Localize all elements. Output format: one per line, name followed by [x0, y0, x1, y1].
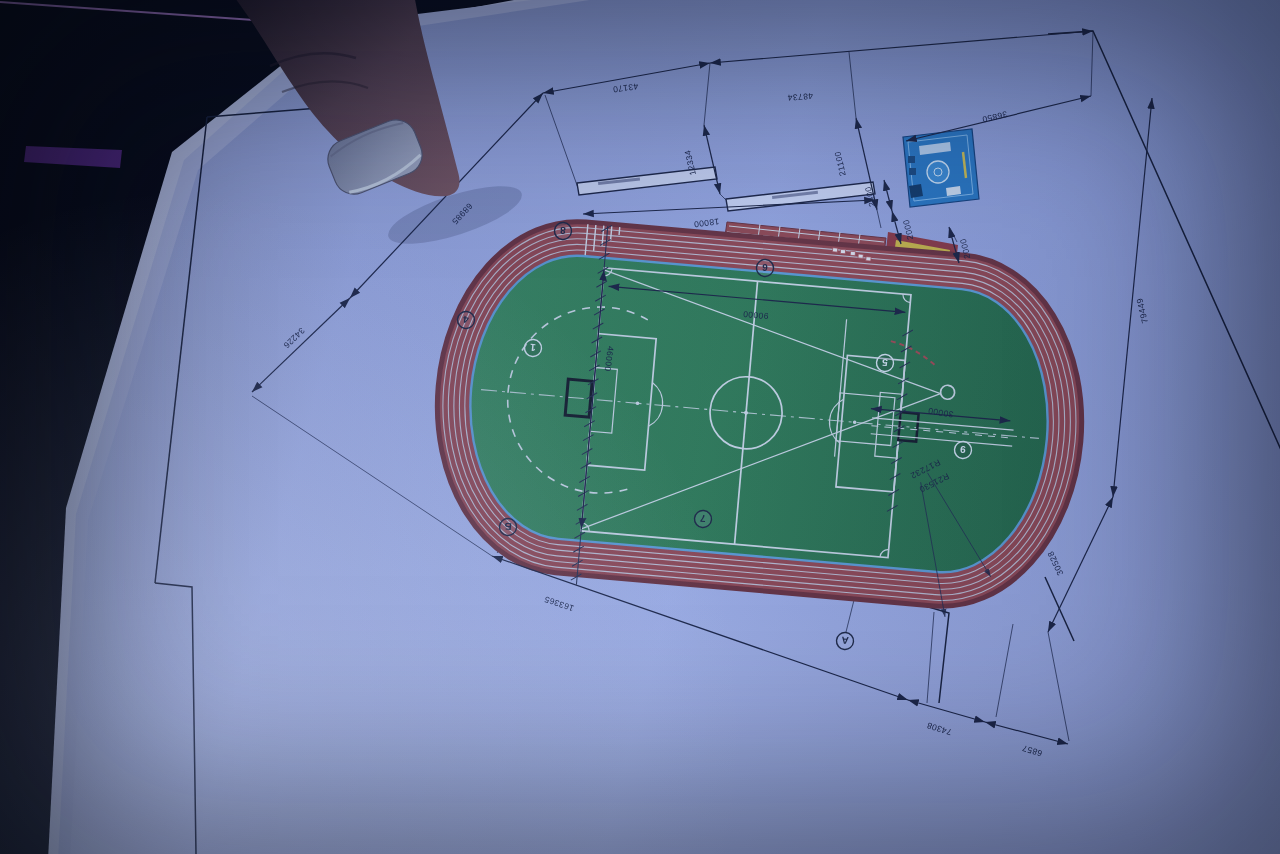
photo-scene: 46000 90000 30000 R17232 R21530 43170 48… [0, 0, 1280, 854]
inset-circle [927, 161, 949, 183]
inset-block [908, 156, 915, 163]
callout-marker: 1 [524, 339, 542, 357]
callout-marker: 5 [876, 354, 894, 372]
binder-strip-left [24, 146, 122, 168]
svg-text:А: А [841, 635, 849, 647]
callout-marker: А [836, 632, 854, 650]
callout-marker: 4 [457, 311, 475, 329]
inset-block [909, 168, 916, 175]
callout-marker: 9 [954, 441, 972, 459]
callout-marker: 6 [756, 259, 774, 277]
callout-marker: 8 [554, 222, 572, 240]
callout-marker: 7 [694, 510, 712, 528]
infield [459, 247, 1059, 580]
photo-of-site-plan: { "drawing": { "dims": ["43170","48734",… [0, 0, 1280, 854]
equipment-area-inset [903, 129, 979, 207]
dimension-label: 48734 [787, 91, 813, 103]
callout-marker: Б [499, 518, 517, 536]
inset-dark-block [909, 184, 923, 198]
svg-text:Б: Б [504, 521, 512, 533]
site-plan-drawing: 46000 90000 30000 R17232 R21530 43170 48… [0, 0, 1280, 854]
